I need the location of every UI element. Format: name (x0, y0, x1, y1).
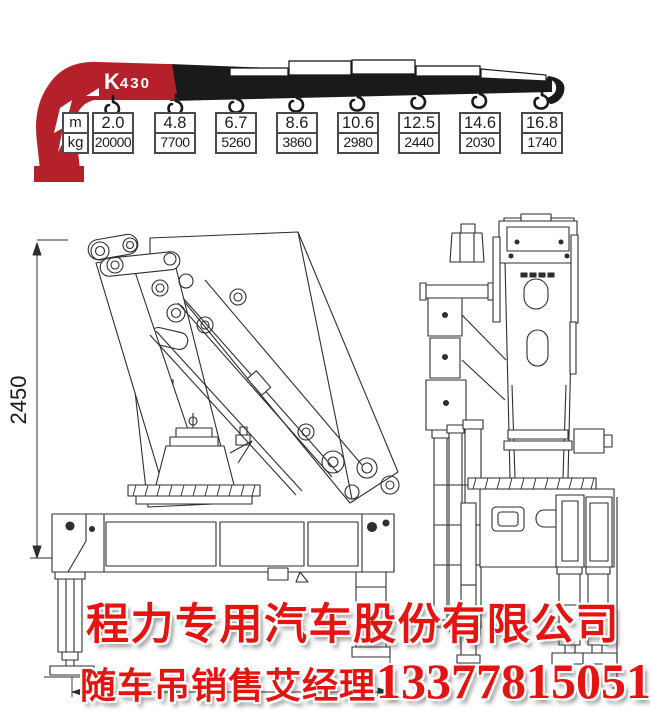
load-chart-column: 6.7 5260 (215, 112, 257, 154)
reach-value: 12.5 (400, 114, 438, 134)
load-chart-unit-box: m kg (62, 112, 89, 154)
capacity-value: 5260 (217, 134, 255, 152)
reach-value: 6.7 (217, 114, 255, 134)
reach-value: 2.0 (94, 114, 132, 134)
unit-label-m: m (64, 114, 87, 134)
load-chart-column: 10.6 2980 (337, 112, 379, 154)
sales-contact-watermark: 随车吊销售艾经理13377815051 (80, 652, 650, 710)
load-chart-column: 2.0 20000 (92, 112, 134, 154)
unit-label-kg: kg (64, 134, 87, 152)
capacity-value: 3860 (278, 134, 316, 152)
capacity-value: 1740 (523, 134, 561, 152)
load-chart-column: 16.8 1740 (521, 112, 563, 154)
reach-value: 10.6 (339, 114, 377, 134)
chassis (52, 514, 394, 582)
sales-text: 随车吊销售艾经理 (80, 666, 376, 706)
reach-value: 14.6 (461, 114, 499, 134)
height-dimension-label: 2450 (6, 376, 31, 425)
capacity-value: 20000 (94, 134, 132, 152)
reach-value: 4.8 (156, 114, 194, 134)
load-chart-column: 4.8 7700 (154, 112, 196, 154)
height-dimension: 2450 (6, 240, 68, 558)
load-chart-column: 14.6 2030 (459, 112, 501, 154)
crane-column (493, 214, 612, 478)
reach-value: 8.6 (278, 114, 316, 134)
load-chart-boom-diagram: K430 (0, 0, 650, 200)
load-chart-column: 8.6 3860 (276, 112, 318, 154)
phone-number: 13377815051 (376, 653, 650, 709)
load-chart-column: 12.5 2440 (398, 112, 440, 154)
capacity-value: 7700 (156, 134, 194, 152)
capacity-value: 2030 (461, 134, 499, 152)
capacity-value: 2980 (339, 134, 377, 152)
capacity-value: 2440 (400, 134, 438, 152)
company-name-watermark: 程力专用汽车股份有限公司 (86, 590, 620, 652)
crane-spec-image: K430 m kg 2.0 20000 4.8 7700 6.7 5260 8.… (0, 0, 650, 726)
reach-value: 16.8 (523, 114, 561, 134)
telescopic-boom (170, 60, 564, 104)
